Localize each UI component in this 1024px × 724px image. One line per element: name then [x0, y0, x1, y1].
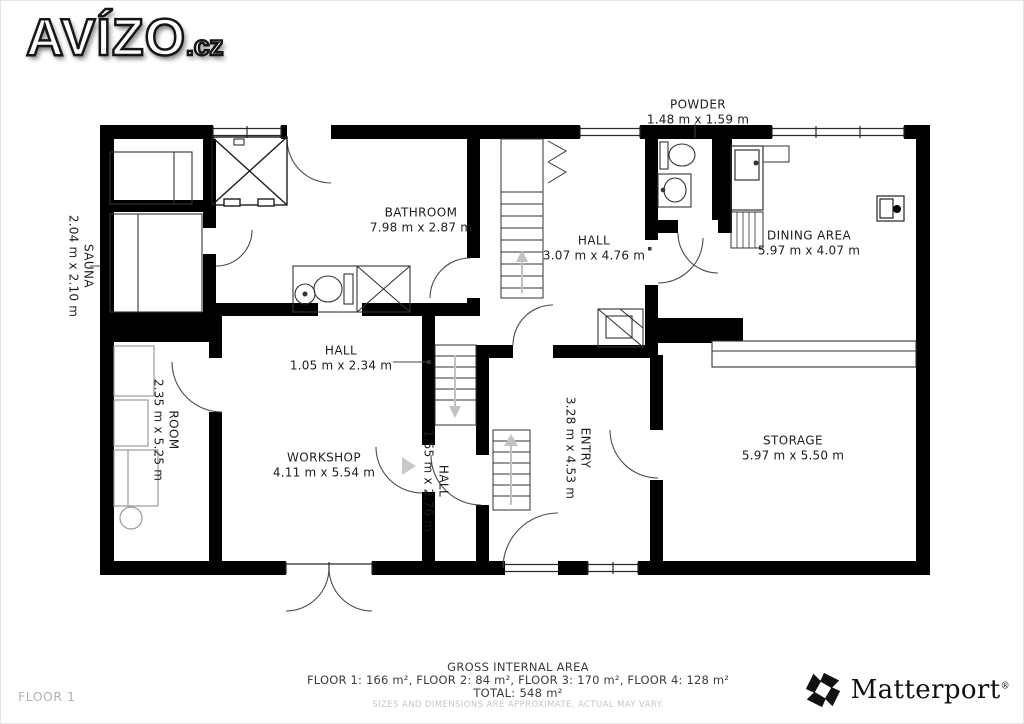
room-label-hall-upper: HALL 3.07 m x 4.76 m [543, 234, 645, 263]
sink-icon [295, 284, 315, 304]
toilet-icon [660, 142, 695, 169]
room-label-powder: POWDER 1.48 m x 1.59 m [647, 98, 749, 127]
avizo-logo: AVÍZO.cz [26, 8, 223, 68]
storage-counter [712, 341, 916, 367]
floorplan-page: { "logo": { "text": "AVÍZO", "suffix": "… [0, 0, 1024, 724]
avizo-logo-suffix: .cz [186, 30, 223, 61]
sauna-benches [110, 152, 202, 312]
room-label-dining-area: DINING AREA 5.97 m x 4.07 m [758, 229, 860, 258]
room-label-entry: ENTRY 3.28 m x 4.53 m [564, 397, 593, 499]
powder-fixtures [658, 142, 695, 207]
room-label-sauna: SAUNA 2.04 m x 2.10 m [67, 215, 96, 317]
matterport-pinwheel-icon [803, 670, 843, 710]
hatch-box [598, 309, 643, 347]
sink-icon [658, 174, 691, 207]
shower-icon [212, 137, 287, 206]
floor-plan-drawing [0, 0, 1024, 724]
room-label-bathroom: BATHROOM 7.98 m x 2.87 m [370, 206, 472, 235]
room-label-hall-lower: HALL 1.55 m x 2.76 m [422, 430, 451, 532]
room-label-room: ROOM 2.35 m x 5.25 m [152, 379, 181, 481]
tv-icon [877, 196, 904, 221]
staircase-hall [435, 345, 476, 425]
toilet-icon [314, 274, 353, 304]
staircase-up [501, 139, 566, 298]
room-label-hall-middle: HALL 1.05 m x 2.34 m [290, 344, 392, 373]
room-label-storage: STORAGE 5.97 m x 5.50 m [742, 434, 844, 463]
matterport-wordmark: Matterport® [851, 675, 1010, 705]
entrance-marker-icon [402, 457, 416, 475]
floor-indicator: FLOOR 1 [18, 689, 76, 704]
matterport-brand: Matterport® [803, 670, 1010, 710]
staircase-entry [493, 430, 530, 510]
room-label-workshop: WORKSHOP 4.11 m x 5.54 m [273, 451, 375, 480]
avizo-logo-text: AVÍZO [26, 9, 186, 67]
registered-mark: ® [1001, 681, 1010, 691]
